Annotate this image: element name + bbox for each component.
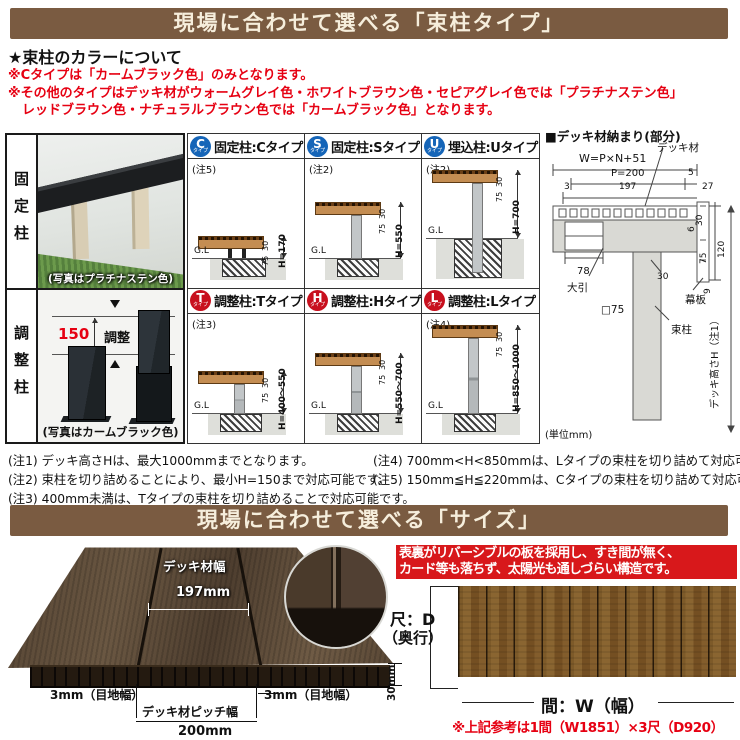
makuita-label: 幕板 — [685, 292, 706, 307]
arrow-down-icon — [110, 300, 120, 308]
gl-label: G.L — [428, 401, 443, 411]
type-c-title: 固定柱:Cタイプ — [214, 137, 303, 156]
deck-width-value: 197mm — [176, 585, 230, 600]
foundation-hatch — [220, 414, 262, 432]
feature-box: 表裏がリバーシブルの板を採用し、すき間が無く、 カード等も落ちず、太陽光も通しづ… — [396, 545, 737, 579]
color-note-2: ※その他のタイプはデッキ材がウォームグレイ色・ホワイトブラウン色・セピアグレイ色… — [8, 85, 683, 102]
type-u-icon: Uタイプ — [424, 136, 445, 157]
depth-bracket-top — [430, 586, 458, 587]
type-s-letter: S — [313, 139, 322, 149]
pitch-arrow — [136, 721, 257, 722]
dim-75: 75 — [495, 346, 504, 356]
deck-plan-view — [458, 586, 736, 677]
dim-30-bottom: 30 — [657, 272, 668, 282]
adjust-post-short — [68, 346, 106, 420]
foundation-hatch — [222, 259, 266, 277]
notes-left: (注1) デッキ高さHは、最大1000mmまでとなります。 (注2) 束柱を切り… — [8, 452, 415, 509]
width-line-right — [658, 702, 734, 703]
dim-6: 6 — [687, 226, 697, 232]
type-cell-h: Hタイプ 調整柱:Hタイプ G.L 30 75 H=550～700 — [305, 289, 422, 444]
dim-75: 75 — [378, 224, 387, 234]
dim-27: 27 — [702, 182, 713, 192]
color-section-heading: ★束柱のカラーについて — [8, 44, 182, 68]
type-cell-l: Lタイプ 調整柱:Lタイプ (注4) G.L 30 75 H=850～1000 — [422, 289, 539, 444]
joint-arrow-right — [258, 693, 280, 694]
tsukabashira-label: 束柱 — [671, 322, 692, 337]
note-5: (注5) 150mm≦H≦220mmは、Cタイプの束柱を切り詰めて対応可能です。 — [373, 471, 740, 490]
fixed-post-caption: (写真はプラチナステン色) — [38, 271, 183, 286]
foundation-hatch — [454, 414, 496, 432]
color-note-3: レッドブラウン色・ナチュラルブラウン色では「カームブラック色」となります。 — [8, 102, 500, 119]
banner-size: 現場に合わせて選べる「サイズ」 — [10, 505, 728, 536]
type-s-title: 固定柱:Sタイプ — [331, 137, 420, 156]
post-adjustable — [234, 384, 245, 414]
type-l-diagram: G.L 30 75 H=850～1000 — [422, 313, 539, 444]
height-label: H=170 — [278, 234, 288, 268]
dim-75: 75 — [261, 392, 270, 402]
type-h-sub: タイプ — [310, 303, 325, 308]
deck-post-photo-left — [71, 201, 89, 260]
gl-label: G.L — [194, 246, 209, 256]
joint-width-left: 3mm（目地幅） — [50, 686, 143, 703]
deck-plank — [198, 371, 264, 384]
type-t-diagram: G.L 30 75 H=400～550 — [188, 313, 304, 444]
type-c-icon: Cタイプ — [190, 136, 211, 157]
gl-label: G.L — [428, 226, 443, 236]
thickness-label: 30mm — [386, 665, 398, 702]
deck-material-label: デッキ材 — [657, 140, 699, 155]
deck-width-label: デッキ材幅 — [163, 556, 226, 575]
type-u-letter: U — [430, 139, 440, 149]
dim-5: 5 — [688, 168, 694, 178]
foundation-hatch — [337, 259, 379, 277]
type-cell-c: Cタイプ 固定柱:Cタイプ (注5) G.L 30 75 H=170 — [188, 134, 305, 289]
adjust-post-tall — [138, 310, 170, 374]
gl-label: G.L — [311, 246, 326, 256]
type-h-icon: Hタイプ — [307, 290, 328, 311]
fixed-post-photo: (写真はプラチナステン色) — [38, 135, 183, 288]
type-s-header: Sタイプ 固定柱:Sタイプ — [305, 134, 421, 159]
type-t-icon: Tタイプ — [190, 290, 211, 311]
post-photo-panel: 固定柱 (写真はプラチナステン色) 調整柱 150 調整 — [5, 133, 185, 444]
deck-cross-section — [30, 665, 390, 688]
tick — [148, 603, 149, 616]
type-l-title: 調整柱:Lタイプ — [448, 291, 535, 310]
w-formula: W=P×N+51 — [579, 152, 646, 165]
ext-line-right — [256, 684, 257, 718]
gl-label: G.L — [194, 401, 209, 411]
adjust-post-sleeve — [136, 366, 172, 422]
gl-label: G.L — [311, 401, 326, 411]
deck-plank — [432, 325, 498, 338]
dim-30: 30 — [261, 241, 270, 251]
fixed-post-label: 固定柱 — [7, 135, 38, 288]
adjust-post-caption: (写真はカームブラック色) — [38, 424, 183, 440]
feature-line-2: カード等も落ちず、太陽光も通しづらい構造です。 — [399, 562, 734, 578]
adjust-post-label: 調整柱 — [7, 290, 38, 443]
joint-closeup-inset — [284, 545, 388, 649]
post-type-table: Cタイプ 固定柱:Cタイプ (注5) G.L 30 75 H=170 Sタイプ — [187, 133, 540, 444]
adjust-post-illustration: 150 調整 (写真はカームブラック色) — [38, 290, 183, 443]
post-foot — [228, 249, 232, 258]
note-4: (注4) 700mm<H<850mmは、Lタイプの束柱を切り詰めて対応可能です。 — [373, 452, 740, 471]
dim-75: 75 — [261, 256, 270, 266]
type-l-header: Lタイプ 調整柱:Lタイプ — [422, 289, 539, 314]
p-dim: P=200 — [611, 168, 645, 179]
dim-30-top: 30 — [695, 215, 705, 226]
tick — [248, 603, 249, 616]
foundation-hatch — [337, 414, 379, 432]
type-c-header: Cタイプ 固定柱:Cタイプ — [188, 134, 304, 159]
dim-75: 75 — [495, 192, 504, 202]
notes-right: (注4) 700mm<H<850mmは、Lタイプの束柱を切り詰めて対応可能です。… — [373, 452, 740, 490]
height-label: H=400～550 — [275, 368, 288, 430]
type-s-icon: Sタイプ — [307, 136, 328, 157]
type-t-header: Tタイプ 調整柱:Tタイプ — [188, 289, 304, 314]
type-s-diagram: G.L 30 75 H=550 — [305, 158, 421, 288]
type-c-letter: C — [196, 139, 205, 149]
dim-30: 30 — [378, 359, 387, 369]
note-1: (注1) デッキ高さHは、最大1000mmまでとなります。 — [8, 452, 415, 471]
fixed-post-cell: 固定柱 (写真はプラチナステン色) — [7, 135, 183, 290]
deck-plank — [315, 202, 381, 215]
height-label: H=550～700 — [392, 362, 405, 424]
deck-width-arrow — [148, 609, 248, 610]
type-u-title: 埋込柱:Uタイプ — [448, 137, 538, 156]
type-cell-t: Tタイプ 調整柱:Tタイプ (注3) G.L 30 75 H=400～550 — [188, 289, 305, 444]
dim-75: 75 — [699, 253, 709, 264]
dim-120: 120 — [717, 241, 727, 258]
type-u-header: Uタイプ 埋込柱:Uタイプ — [422, 134, 539, 159]
type-c-sub: タイプ — [193, 149, 208, 154]
dim-30: 30 — [378, 209, 387, 219]
joint-arrow-left — [112, 693, 134, 694]
type-u-sub: タイプ — [427, 149, 442, 154]
type-s-sub: タイプ — [310, 149, 325, 154]
dim-197: 197 — [619, 182, 636, 192]
adjust-dim-text: 調整 — [104, 327, 130, 346]
type-h-header: Hタイプ 調整柱:Hタイプ — [305, 289, 421, 314]
pitch-label: デッキ材ピッチ幅 — [142, 703, 238, 720]
deck-plank — [432, 170, 498, 183]
note-2: (注2) 束柱を切り詰めることにより、最小H=150まで対応可能です。 — [8, 471, 415, 490]
type-cell-s: Sタイプ 固定柱:Sタイプ (注2) G.L 30 75 H=550 — [305, 134, 422, 289]
height-label: H=550 — [395, 224, 405, 258]
post-foot — [242, 249, 246, 258]
sq75-label: □75 — [601, 304, 624, 316]
post-adjustable — [351, 366, 362, 414]
pitch-value: 200mm — [178, 724, 232, 739]
post-embedded — [472, 183, 483, 273]
height-label: H=850～1000 — [509, 344, 522, 412]
dim-30: 30 — [261, 377, 270, 387]
page: 現場に合わせて選べる「束柱タイプ」 ★束柱のカラーについて ※Cタイプは「カーム… — [0, 0, 740, 740]
dim-75: 75 — [378, 374, 387, 384]
type-cell-u: Uタイプ 埋込柱:Uタイプ (注2) G.L 30 75 H=700 — [422, 134, 539, 289]
dim-3: 3 — [564, 182, 570, 192]
type-t-title: 調整柱:Tタイプ — [214, 291, 302, 310]
adjust-dim-value: 150 — [58, 325, 89, 343]
type-t-sub: タイプ — [193, 303, 208, 308]
obiki-label: 大引 — [567, 280, 588, 295]
type-l-icon: Lタイプ — [424, 290, 445, 311]
feature-line-1: 表裏がリバーシブルの板を採用し、すき間が無く、 — [399, 546, 734, 562]
adjust-post-cell: 調整柱 150 調整 (写真はカームブラック色) — [7, 290, 183, 443]
deck-plank — [315, 353, 381, 366]
deck-height-label: デッキ高さH（注1） — [706, 315, 721, 409]
joint-width-right: 3mm（目地幅） — [264, 686, 357, 703]
width-line-left — [462, 702, 534, 703]
depth-bracket-bottom — [430, 688, 458, 689]
type-h-title: 調整柱:Hタイプ — [331, 291, 421, 310]
dim-30: 30 — [495, 331, 504, 341]
type-l-sub: タイプ — [427, 303, 442, 308]
post — [351, 215, 362, 259]
width-label: 間：W（幅） — [541, 692, 645, 717]
deck-fitting-diagram: ■デッキ材納まり(部分) — [545, 126, 738, 444]
type-c-diagram: G.L 30 75 H=170 — [188, 158, 304, 288]
arrow-up-icon — [110, 360, 120, 368]
height-label: H=700 — [512, 200, 522, 234]
deck-post-photo-right — [131, 185, 149, 249]
post-adjustable — [468, 338, 479, 414]
type-u-diagram: G.L 30 75 H=700 — [422, 158, 539, 288]
dim-78: 78 — [577, 266, 590, 277]
banner-post-type: 現場に合わせて選べる「束柱タイプ」 — [10, 8, 728, 39]
type-h-diagram: G.L 30 75 H=550～700 — [305, 313, 421, 444]
unit-label: (単位mm) — [545, 426, 592, 441]
size-reference-note: ※上記参考は1間（W1851）×3尺（D920） — [452, 716, 724, 736]
color-note-1: ※Cタイプは「カームブラック色」のみとなります。 — [8, 67, 313, 84]
dim-30: 30 — [495, 177, 504, 187]
depth-label-2: （奥行） — [383, 627, 443, 648]
